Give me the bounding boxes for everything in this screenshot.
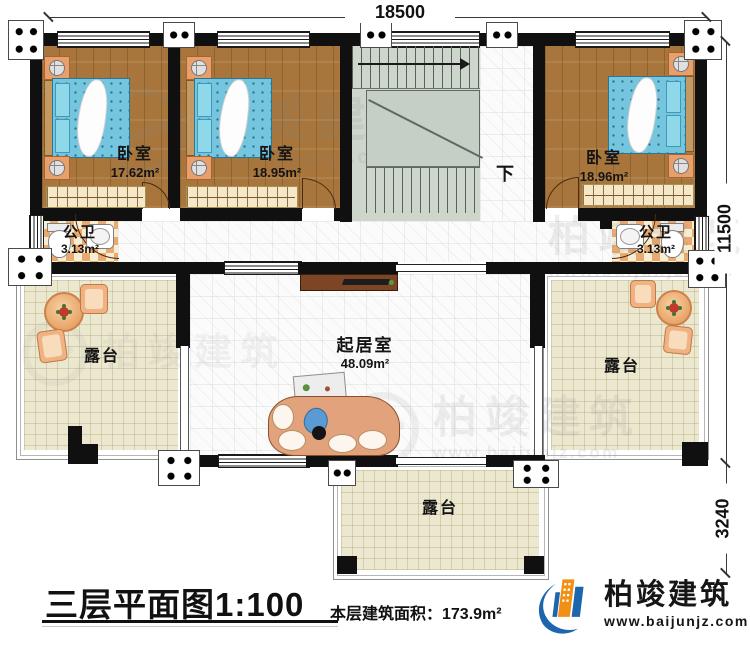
- living-north-wall-tv: [298, 262, 398, 274]
- brand-url: www.baijunjz.com: [604, 613, 749, 629]
- terrace-bottom-floor: [341, 470, 539, 570]
- divider-bed2-stair: [340, 46, 352, 222]
- terrace-chair: [36, 328, 68, 364]
- bed-pillow: [55, 119, 70, 153]
- sofa: [268, 396, 398, 456]
- bed-pillow: [666, 115, 681, 147]
- living-south-sliding-door: [396, 457, 488, 465]
- dimension-right-lower-value: 3240: [713, 484, 734, 554]
- column: [486, 22, 518, 48]
- stair-landing-fold-line: [368, 99, 483, 158]
- terrace-table: [656, 290, 692, 326]
- bedroom-right-west-wall: [533, 46, 545, 222]
- terrace-corner: [337, 556, 357, 574]
- sofa-cushion: [328, 434, 357, 453]
- nightstand: [44, 156, 70, 180]
- room-label-terrace-left: 露台: [70, 348, 134, 367]
- lamp-icon: [49, 160, 65, 176]
- tv-icon: [342, 279, 390, 285]
- column: [360, 22, 392, 48]
- dimension-top-value: 18500: [345, 2, 455, 23]
- decor-dot: [302, 384, 310, 392]
- column: [328, 460, 356, 486]
- column: [163, 22, 195, 48]
- column: [684, 20, 722, 60]
- room-label-bedroom-right: 卧室 18.96m²: [548, 150, 660, 184]
- living-north-wall-b: [486, 262, 612, 274]
- flower-icon: [669, 303, 679, 313]
- living-west-wall: [176, 262, 190, 348]
- bed-pillow: [197, 83, 212, 117]
- brand-logo: 柏竣建筑 www.baijunjz.com: [532, 574, 749, 636]
- living-north-window: [224, 261, 302, 275]
- nightstand: [668, 154, 694, 178]
- living-east-glass: [534, 346, 543, 456]
- column: [8, 20, 44, 60]
- bathR-west-wall: [600, 221, 612, 229]
- bed2-south-wall-a: [180, 208, 302, 221]
- room-label-terrace-bottom: 露台: [408, 500, 472, 519]
- lamp-icon: [191, 60, 207, 76]
- room-label-bath-right: 公卫 3.13m²: [616, 224, 696, 256]
- right-wall: [695, 40, 707, 216]
- lamp-icon: [191, 160, 207, 176]
- terrace-corner: [524, 556, 544, 574]
- floor-plan: 柏竣建筑 www.baijunjz.com 柏竣建筑 www.baijunjz.…: [0, 0, 750, 646]
- wardrobe: [186, 186, 298, 208]
- living-east-wall: [530, 262, 545, 348]
- lamp-icon: [673, 158, 689, 174]
- wardrobe: [46, 186, 146, 208]
- bed-pillow: [197, 119, 212, 153]
- bed1-top-window: [57, 31, 150, 48]
- person-head: [312, 426, 326, 440]
- sofa-cushion: [358, 430, 387, 450]
- stair-lower-flight: [366, 166, 480, 213]
- stair-arrow-icon: [460, 58, 470, 70]
- room-label-terrace-right: 露台: [590, 358, 654, 377]
- room-label-bedroom-mid: 卧室 18.95m²: [222, 146, 332, 180]
- plant-icon: [389, 280, 394, 285]
- corridor-south-wall-a: [30, 262, 190, 274]
- living-north-wall-a: [190, 262, 226, 274]
- room-label-bath-left: 公卫 3.13m²: [40, 224, 120, 256]
- floor-area-note: 本层建筑面积：173.9m²: [330, 600, 502, 624]
- bed-pillow: [55, 83, 70, 117]
- nightstand: [186, 56, 212, 80]
- left-wall: [30, 40, 42, 215]
- column: [158, 450, 200, 486]
- wardrobe: [582, 184, 694, 206]
- bed2-south-wall-b: [334, 208, 352, 221]
- plan-title: 三层平面图1:100: [45, 578, 304, 626]
- sofa-cushion: [272, 404, 294, 430]
- title-underline-thin: [42, 626, 338, 627]
- brand-name: 柏竣建筑: [604, 581, 749, 610]
- terrace-chair: [663, 325, 694, 356]
- terrace-chair: [630, 280, 656, 308]
- tv-cabinet: [300, 274, 398, 291]
- sofa-cushion: [278, 430, 306, 451]
- stair-landing: [366, 90, 480, 168]
- decor-dot: [325, 386, 330, 391]
- title-underline: [42, 620, 338, 623]
- living-north-sliding-door: [396, 264, 488, 272]
- terrace-corner: [682, 442, 708, 466]
- stair-direction-line: [358, 63, 462, 65]
- room-label-living: 起居室 48.09m²: [312, 336, 418, 371]
- column: [513, 460, 559, 488]
- room-label-bedroom-left: 卧室 17.62m²: [80, 146, 190, 180]
- corridor-floor: [118, 221, 612, 262]
- living-south-window: [218, 454, 310, 468]
- stair-landing-strip: [480, 46, 533, 222]
- flower-icon: [59, 307, 69, 317]
- bed2-top-window: [217, 31, 310, 48]
- terrace-corner: [68, 426, 82, 448]
- dimension-right-main-value: 11500: [715, 184, 736, 274]
- living-west-glass: [180, 346, 189, 456]
- bed-pillow: [666, 81, 681, 113]
- terrace-chair: [80, 284, 108, 314]
- brand-logo-icon: [532, 574, 596, 636]
- stair-down-label: 下: [492, 164, 518, 185]
- bed3-top-window: [575, 31, 670, 48]
- nightstand: [44, 56, 70, 80]
- divider-bed1-bed2: [168, 46, 180, 208]
- terrace-table: [44, 292, 84, 332]
- lamp-icon: [49, 60, 65, 76]
